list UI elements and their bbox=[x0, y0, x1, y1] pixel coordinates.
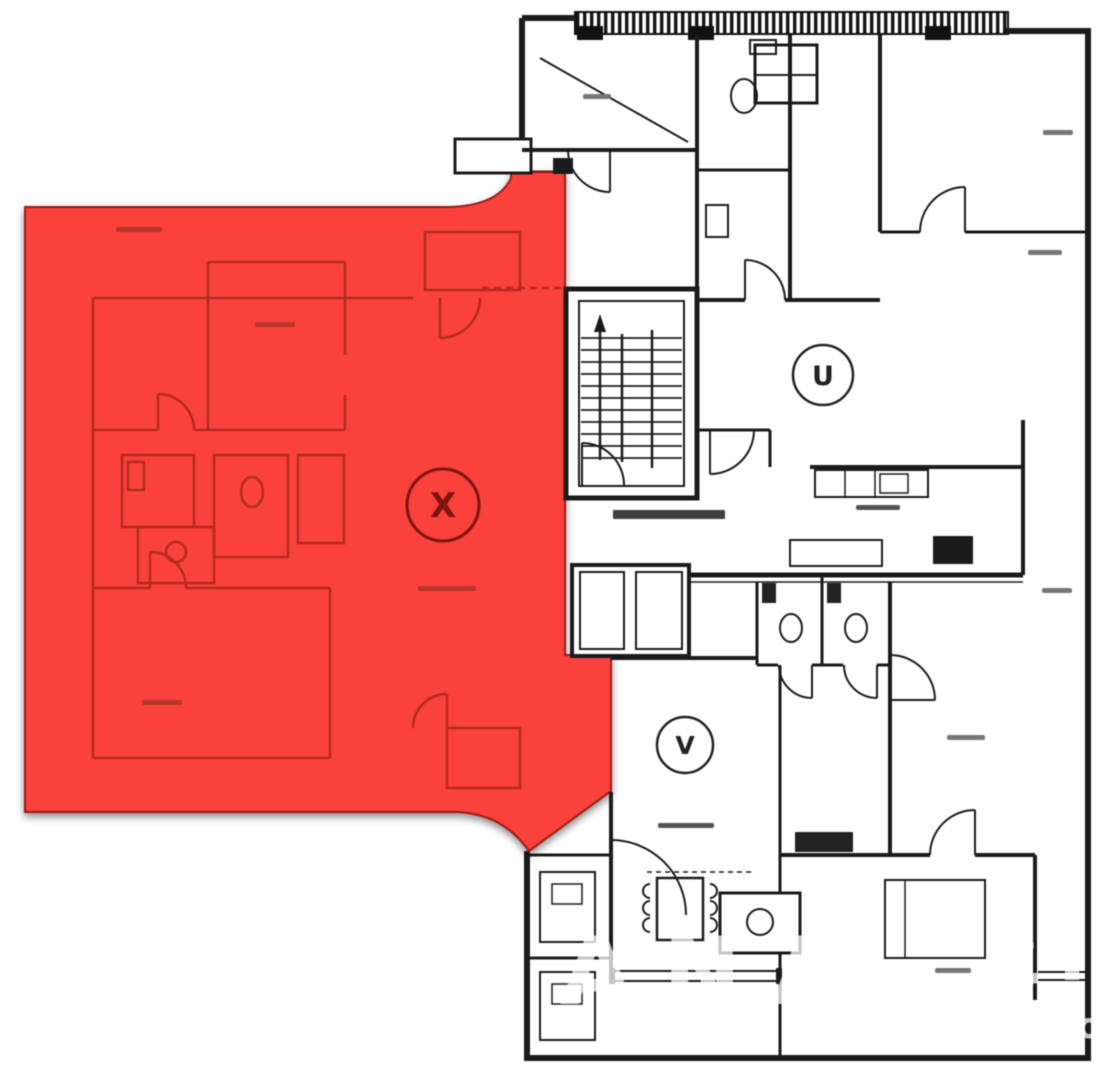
wardrobe bbox=[795, 832, 853, 852]
floor-plan-page: X bbox=[0, 0, 1111, 1080]
unit-u-label: U bbox=[812, 361, 834, 392]
wc-cluster bbox=[757, 575, 890, 698]
closet-box bbox=[455, 139, 573, 174]
watermark-text-1: ANA bbox=[560, 918, 874, 1027]
unit-u-badge[interactable]: U bbox=[793, 345, 853, 405]
kitchen bbox=[688, 420, 1023, 582]
bed-bottom-right bbox=[885, 880, 985, 958]
unit-v-label: V bbox=[675, 731, 695, 760]
elevator bbox=[572, 565, 689, 656]
stove bbox=[933, 536, 973, 564]
watermark: ANA 2 IS Imo bbox=[560, 909, 1111, 1047]
watermark-text-2: 2 bbox=[985, 912, 1047, 1006]
unit-x-region[interactable] bbox=[25, 172, 611, 851]
watermark-text-4: Imo bbox=[1026, 1006, 1102, 1047]
corridor-label-mark bbox=[613, 510, 725, 519]
stairwell bbox=[566, 289, 697, 498]
watermark-text-3: IS bbox=[1058, 909, 1111, 998]
unit-v-badge[interactable]: V bbox=[657, 717, 713, 773]
floor-plan-svg: X bbox=[0, 0, 1111, 1080]
unit-x-label: X bbox=[430, 486, 456, 526]
